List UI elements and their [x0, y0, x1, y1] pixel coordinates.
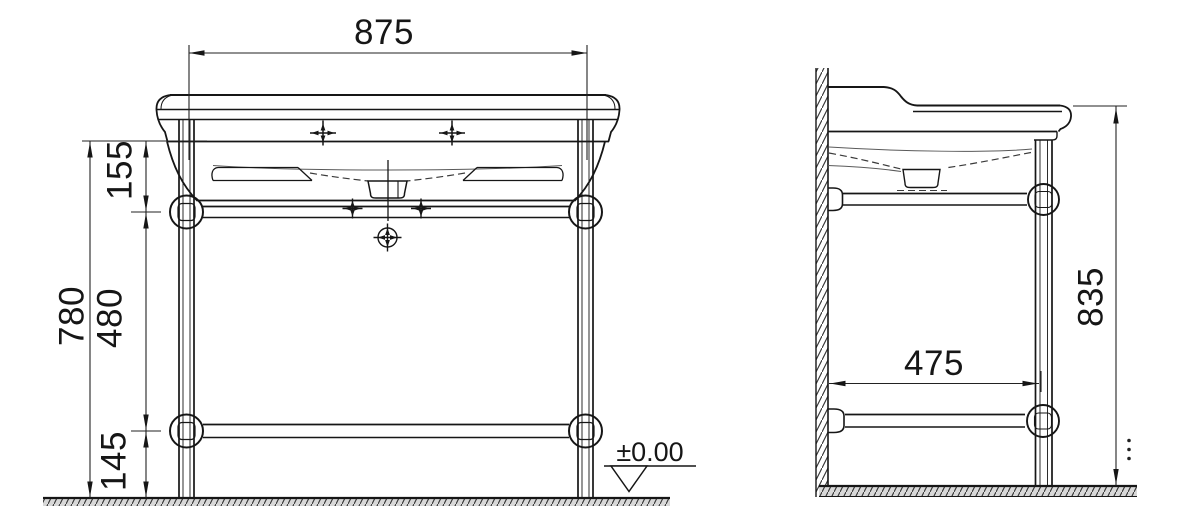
front-view: 875 780 480 155 145 ±0.00 — [43, 13, 696, 506]
front-bowl-interior — [212, 160, 563, 221]
side-view: 475 835 — [816, 68, 1137, 497]
datum-label: ±0.00 — [616, 437, 683, 467]
front-rail-lower — [203, 425, 569, 438]
ball-joint — [1028, 184, 1059, 215]
front-leg-left — [179, 119, 194, 498]
fixing-hole-marker-icon — [343, 199, 363, 219]
dim-label-depth: 475 — [904, 344, 964, 383]
dim-label-rim-to-rail: 155 — [101, 140, 140, 200]
front-basin-apron — [167, 142, 605, 201]
dim-label-lower-rail-height: 145 — [95, 431, 134, 491]
drawing-page: 875 780 480 155 145 ±0.00 — [0, 0, 1200, 506]
side-floor — [819, 486, 1137, 497]
dim-label-overall-height: 780 — [53, 286, 92, 346]
side-basin-profile — [828, 87, 1071, 140]
drain-position-marker-icon — [374, 224, 402, 252]
wall-bracket — [828, 409, 844, 433]
technical-drawing: 875 780 480 155 145 ±0.00 — [0, 0, 1200, 506]
side-drain — [903, 170, 940, 188]
front-rail-upper — [203, 207, 569, 218]
side-rail-lower — [828, 405, 1059, 437]
front-leg-right — [578, 119, 593, 498]
dim-label-front-width: 875 — [354, 13, 414, 52]
datum-triangle-icon — [611, 466, 647, 492]
fixing-hole-marker-icon — [411, 199, 431, 219]
wall-bracket — [828, 188, 843, 211]
ball-joint — [1027, 405, 1059, 437]
continuation-dots-icon — [1127, 439, 1131, 461]
floor-level-datum: ±0.00 — [604, 437, 696, 492]
dim-label-side-height: 835 — [1072, 267, 1111, 327]
dim-label-rail-spacing: 480 — [91, 288, 130, 348]
side-rail-upper — [828, 184, 1059, 215]
front-floor — [43, 498, 670, 506]
side-wall — [816, 68, 828, 497]
side-bowl-interior — [828, 147, 1032, 191]
front-basin-top — [156, 95, 619, 142]
